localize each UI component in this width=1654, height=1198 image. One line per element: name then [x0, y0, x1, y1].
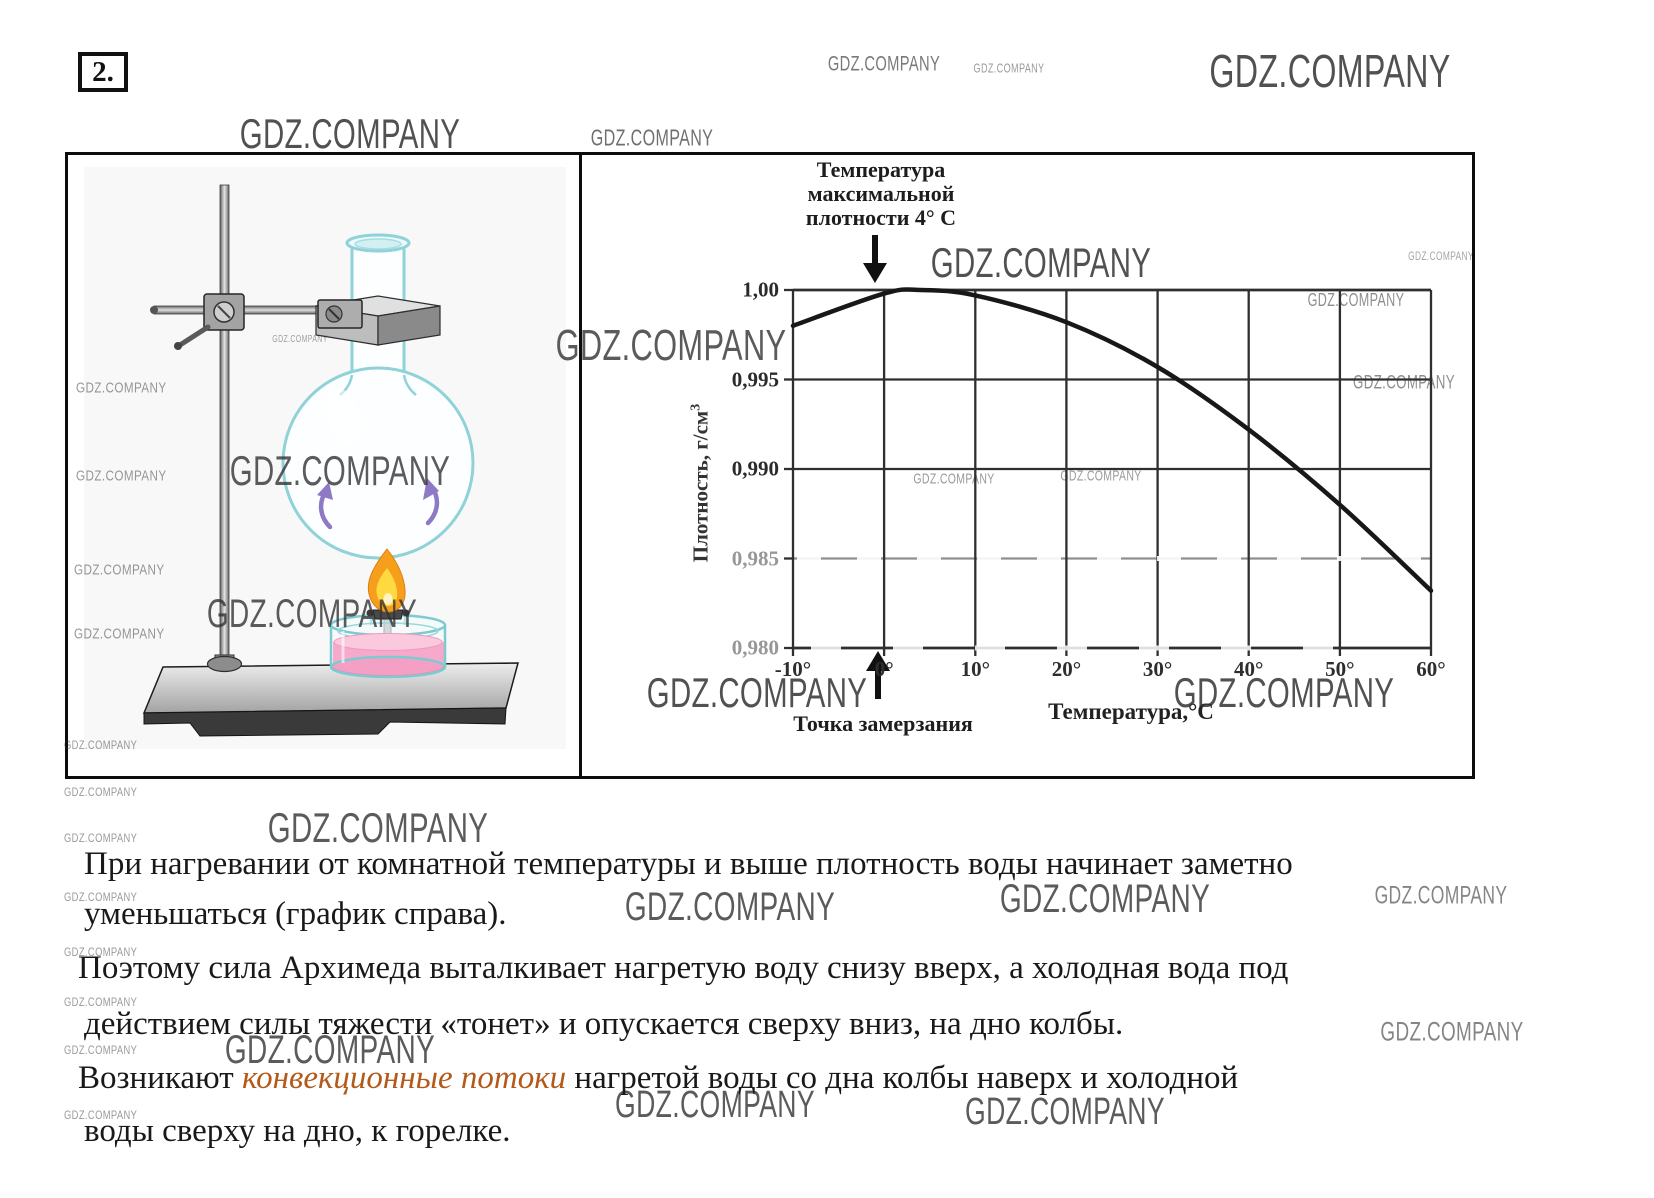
- text-segment: нагретой воды со дна колбы наверх и холо…: [566, 1060, 1238, 1096]
- watermark: GDZ.COMPANY: [1353, 374, 1455, 393]
- annotation-line: Температура: [806, 158, 956, 182]
- watermark: GDZ.COMPANY: [931, 242, 1152, 284]
- watermark: GDZ.COMPANY: [1408, 250, 1474, 262]
- watermark: GDZ.COMPANY: [64, 1044, 137, 1056]
- max-density-annotation: Температура максимальной плотности 4° С: [806, 158, 956, 230]
- watermark: GDZ.COMPANY: [1308, 291, 1405, 309]
- watermark: GDZ.COMPANY: [1375, 884, 1508, 909]
- watermark: GDZ.COMPANY: [64, 786, 137, 798]
- watermark: GDZ.COMPANY: [64, 739, 137, 751]
- watermark: GDZ.COMPANY: [828, 54, 940, 75]
- watermark: GDZ.COMPANY: [1000, 879, 1210, 919]
- watermark: GDZ.COMPANY: [207, 594, 417, 634]
- y-tick-label: 0,990: [732, 457, 779, 482]
- watermark: GDZ.COMPANY: [913, 472, 994, 487]
- text-segment: При нагревании от комнатной температуры …: [84, 846, 1293, 882]
- text-segment: Поэтому сила Архимеда выталкивает нагрет…: [78, 950, 1288, 986]
- text-line: Возникают конвекционные потоки нагретой …: [78, 1060, 1238, 1097]
- x-tick-label: 30°: [1143, 657, 1172, 682]
- text-line: Поэтому сила Архимеда выталкивает нагрет…: [78, 950, 1288, 987]
- y-tick-label: 1,00: [742, 278, 779, 303]
- watermark: GDZ.COMPANY: [1380, 1019, 1523, 1046]
- watermark: GDZ.COMPANY: [268, 807, 489, 849]
- watermark: GDZ.COMPANY: [74, 627, 165, 642]
- watermark: GDZ.COMPANY: [272, 335, 327, 345]
- text-line: уменьшаться (график справа).: [84, 896, 507, 933]
- watermark: GDZ.COMPANY: [64, 832, 137, 844]
- y-tick-label: 0,995: [732, 367, 779, 392]
- watermark: GDZ.COMPANY: [230, 450, 451, 492]
- annotation-line: плотности 4° С: [806, 206, 956, 230]
- watermark: GDZ.COMPANY: [625, 887, 835, 927]
- watermark: GDZ.COMPANY: [1209, 48, 1450, 94]
- watermark: GDZ.COMPANY: [76, 381, 167, 396]
- highlighted-phrase: конвекционные потоки: [242, 1060, 566, 1096]
- watermark: GDZ.COMPANY: [74, 563, 165, 578]
- text-segment: воды сверху на дно, к горелке.: [84, 1113, 511, 1149]
- y-tick-label: 0,980: [732, 636, 779, 661]
- text-line: действием силы тяжести «тонет» и опускае…: [84, 1006, 1123, 1043]
- scanned-textbook-page: 2.: [0, 0, 1654, 1198]
- task-number-box: 2.: [78, 52, 128, 92]
- watermark: GDZ.COMPANY: [965, 1093, 1165, 1131]
- watermark: GDZ.COMPANY: [1060, 469, 1141, 484]
- holder-clamp: [318, 300, 362, 328]
- watermark: GDZ.COMPANY: [591, 127, 714, 150]
- down-arrow-icon: [863, 235, 887, 285]
- text-segment: уменьшаться (график справа).: [84, 896, 507, 932]
- x-tick-label: 0°: [875, 657, 894, 682]
- task-number: 2.: [92, 56, 114, 88]
- density-curve: [793, 289, 1431, 590]
- y-axis-label: Плотность, г/см3: [689, 404, 714, 563]
- watermark: GDZ.COMPANY: [76, 469, 167, 484]
- x-tick-label: 20°: [1052, 657, 1081, 682]
- scan-artifact: [908, 599, 934, 627]
- watermark: GDZ.COMPANY: [1174, 672, 1395, 714]
- text-line: воды сверху на дно, к горелке.: [84, 1113, 511, 1150]
- y-tick-label: 0,985: [732, 546, 779, 571]
- annotation-line: максимальной: [806, 182, 956, 206]
- text-line: При нагревании от комнатной температуры …: [84, 846, 1293, 883]
- text-segment: Возникают: [78, 1060, 242, 1096]
- watermark: GDZ.COMPANY: [974, 62, 1045, 75]
- watermark: GDZ.COMPANY: [556, 324, 787, 368]
- scan-artifact: [811, 593, 835, 621]
- x-tick-label: 60°: [1416, 657, 1445, 682]
- x-tick-label: 10°: [961, 657, 990, 682]
- watermark: GDZ.COMPANY: [647, 672, 868, 714]
- watermark: GDZ.COMPANY: [240, 113, 461, 155]
- text-segment: действием силы тяжести «тонет» и опускае…: [84, 1006, 1123, 1042]
